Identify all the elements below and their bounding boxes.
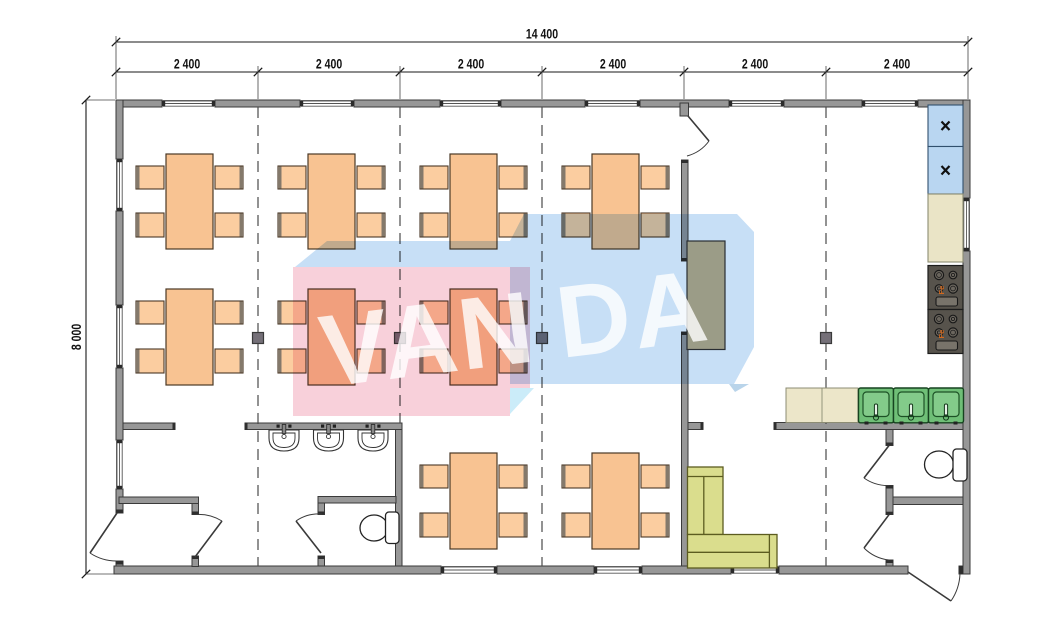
svg-text:8 000: 8 000 — [69, 324, 85, 351]
svg-text:2 400: 2 400 — [600, 56, 627, 72]
svg-text:14 400: 14 400 — [526, 26, 558, 42]
svg-text:2 400: 2 400 — [174, 56, 201, 72]
svg-text:2 400: 2 400 — [458, 56, 485, 72]
svg-text:2 400: 2 400 — [742, 56, 769, 72]
svg-text:Fe: Fe — [937, 286, 946, 295]
svg-text:Fe: Fe — [937, 330, 946, 339]
svg-text:2 400: 2 400 — [316, 56, 343, 72]
svg-text:2 400: 2 400 — [884, 56, 911, 72]
